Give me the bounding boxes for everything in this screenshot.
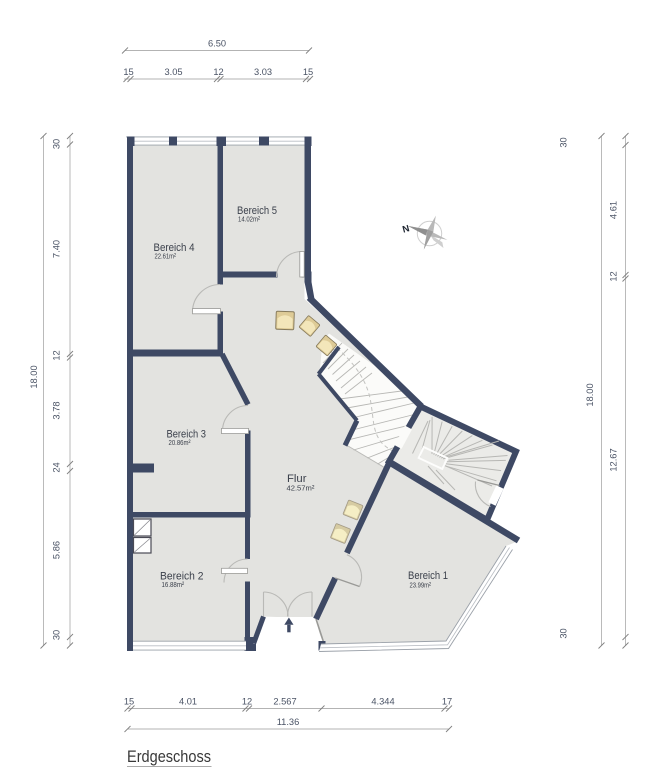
svg-text:14.02m²: 14.02m² — [238, 215, 260, 224]
svg-text:20.86m²: 20.86m² — [169, 438, 191, 447]
svg-text:12: 12 — [609, 271, 619, 281]
svg-text:30: 30 — [559, 628, 569, 638]
svg-text:5.86: 5.86 — [52, 541, 62, 559]
svg-text:30: 30 — [559, 137, 569, 147]
svg-text:12: 12 — [213, 67, 223, 77]
svg-text:12: 12 — [52, 350, 62, 360]
svg-text:4.61: 4.61 — [609, 201, 619, 219]
svg-text:6.50: 6.50 — [208, 39, 226, 49]
svg-text:4.344: 4.344 — [371, 697, 394, 707]
svg-text:16.88m²: 16.88m² — [162, 580, 185, 589]
svg-text:23.99m²: 23.99m² — [410, 581, 432, 590]
svg-text:3.78: 3.78 — [52, 401, 62, 419]
svg-text:18.00: 18.00 — [29, 365, 39, 388]
svg-text:3.03: 3.03 — [254, 67, 272, 77]
svg-text:42.57m²: 42.57m² — [287, 484, 315, 493]
svg-text:24: 24 — [52, 462, 62, 472]
svg-text:18.00: 18.00 — [585, 383, 595, 406]
svg-text:11.36: 11.36 — [277, 717, 300, 727]
svg-text:7.40: 7.40 — [52, 240, 62, 258]
svg-text:12.67: 12.67 — [609, 448, 619, 471]
svg-text:30: 30 — [52, 139, 62, 149]
svg-text:12: 12 — [242, 697, 252, 707]
svg-text:Erdgeschoss: Erdgeschoss — [127, 747, 211, 766]
svg-text:22.61m²: 22.61m² — [155, 252, 177, 261]
svg-text:15: 15 — [123, 67, 133, 77]
svg-text:15: 15 — [124, 697, 134, 707]
svg-text:17: 17 — [442, 697, 452, 707]
svg-text:15: 15 — [303, 67, 313, 77]
svg-text:3.05: 3.05 — [164, 67, 182, 77]
svg-text:2.567: 2.567 — [273, 697, 296, 707]
svg-text:30: 30 — [52, 630, 62, 640]
svg-text:4.01: 4.01 — [179, 697, 197, 707]
